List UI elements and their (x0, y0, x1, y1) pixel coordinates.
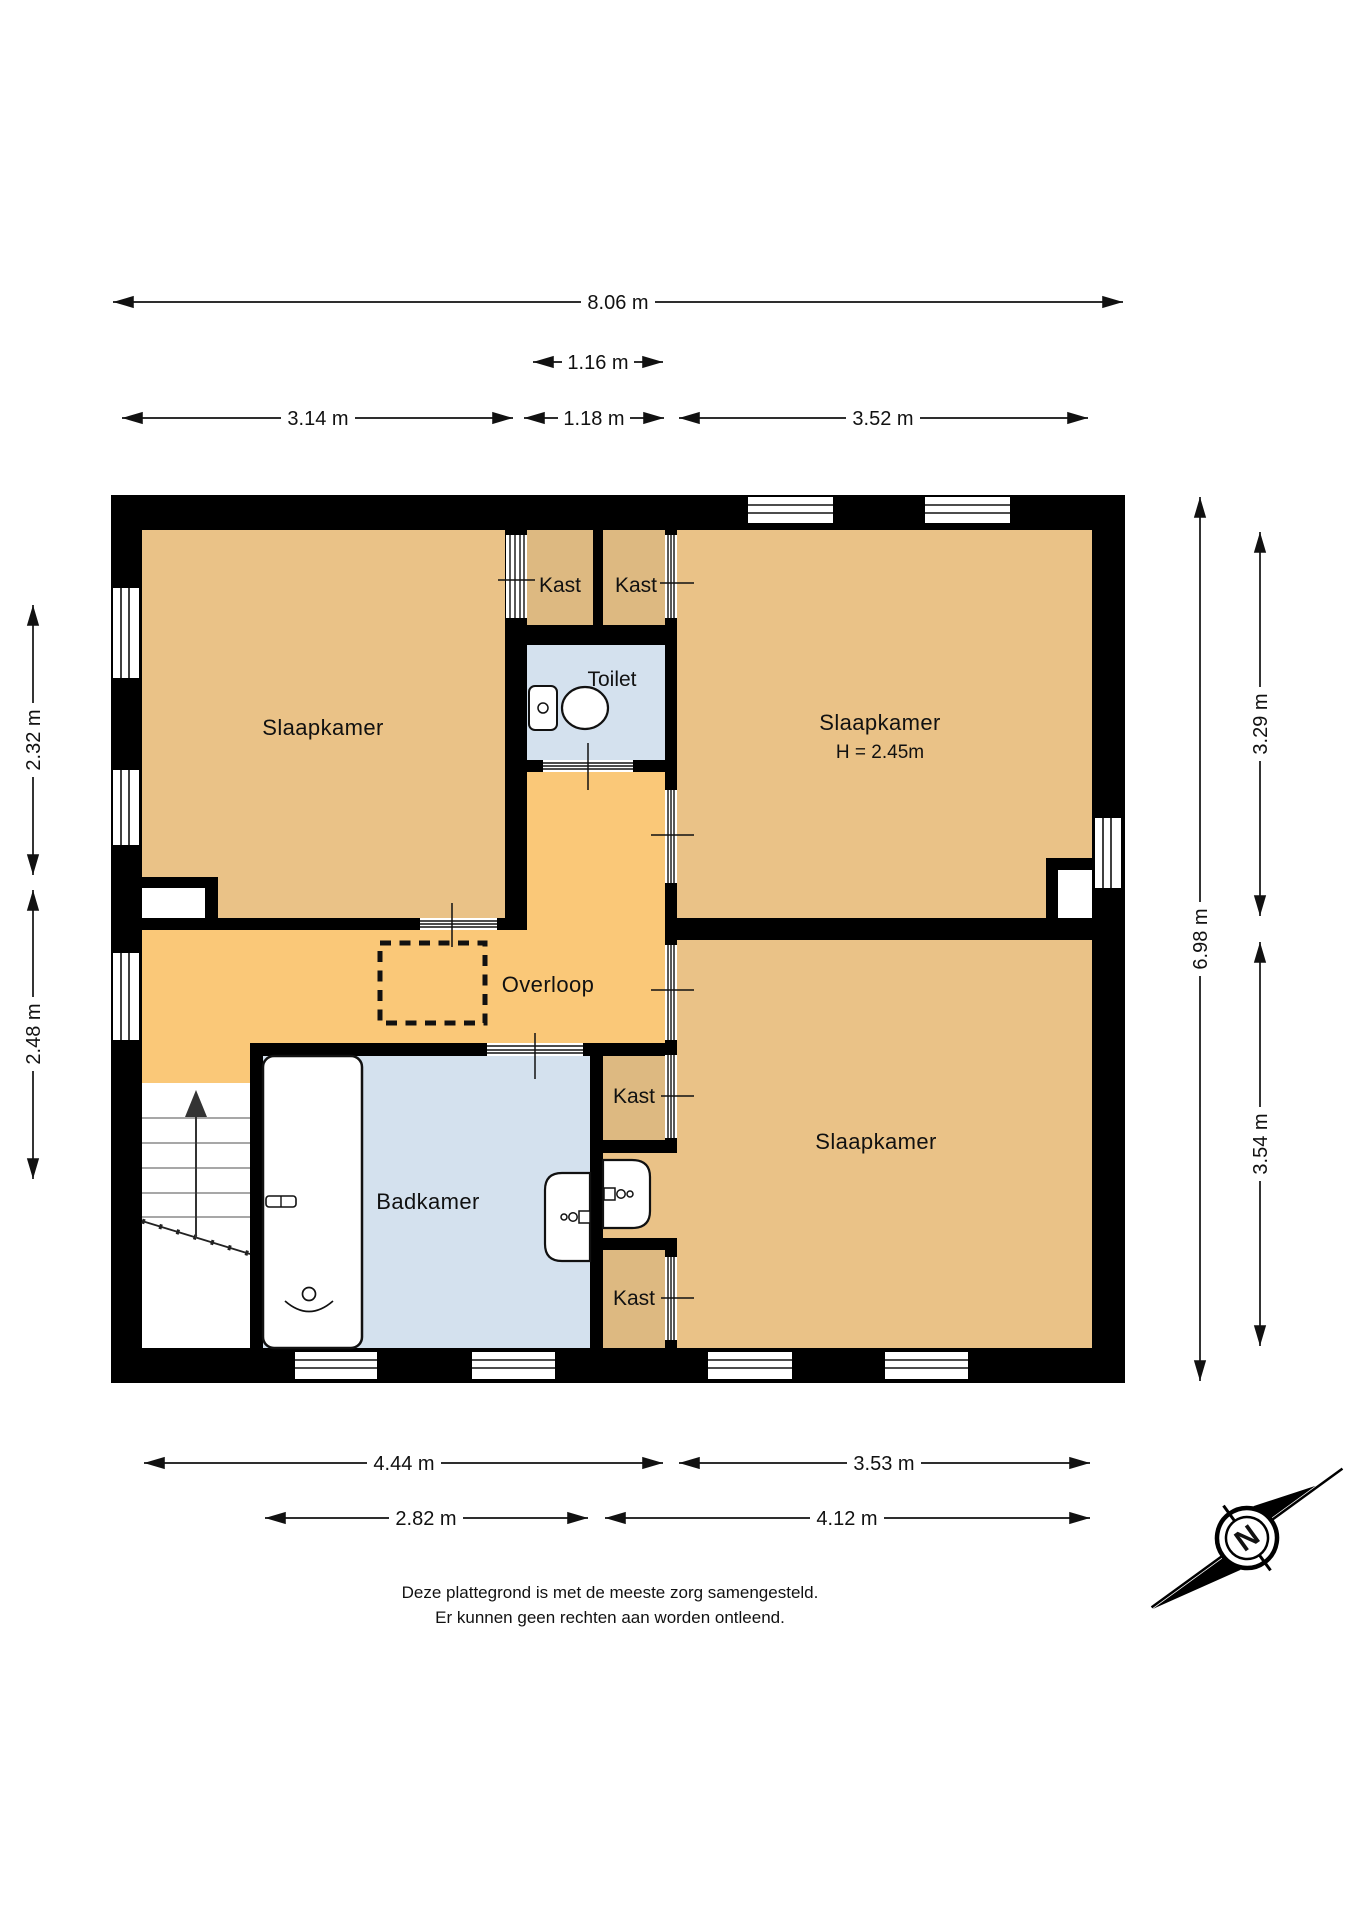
label-kast-middle: Kast (613, 1085, 655, 1108)
label-toilet: Toilet (587, 668, 636, 691)
svg-text:3.53 m: 3.53 m (853, 1453, 914, 1475)
door-kast-top-right (665, 535, 677, 618)
window-left-2 (113, 770, 139, 845)
dim-top-3-14: 3.14 m (122, 406, 513, 430)
dim-bottom-3-53: 3.53 m (679, 1451, 1090, 1475)
dim-left-2-48: 2.48 m (21, 890, 45, 1179)
dim-bottom-4-44: 4.44 m (144, 1451, 663, 1475)
dim-left-2-32: 2.32 m (21, 605, 45, 875)
dim-right-3-29: 3.29 m (1248, 532, 1272, 916)
label-height-note: H = 2.45m (836, 742, 924, 763)
label-badkamer: Badkamer (376, 1189, 479, 1214)
floor-plan: Slaapkamer Kast Kast Toilet Slaapkamer H… (111, 495, 1125, 1383)
door-kast-top-left (506, 535, 527, 618)
disclaimer: Deze plattegrond is met de meeste zorg s… (402, 1583, 819, 1627)
svg-text:1.16 m: 1.16 m (567, 352, 628, 374)
label-slaapkamer-right-bottom: Slaapkamer (815, 1129, 936, 1154)
svg-text:3.52 m: 3.52 m (852, 408, 913, 430)
alcove-sink-icon (603, 1160, 650, 1228)
door-slaapkamer-right-bottom (665, 945, 677, 1040)
badkamer-sink-icon (545, 1173, 590, 1261)
svg-text:3.29 m: 3.29 m (1250, 693, 1272, 754)
svg-text:2.48 m: 2.48 m (23, 1003, 45, 1064)
svg-text:3.54 m: 3.54 m (1250, 1113, 1272, 1174)
svg-text:4.44 m: 4.44 m (373, 1453, 434, 1475)
floorplan-canvas: Slaapkamer Kast Kast Toilet Slaapkamer H… (0, 0, 1358, 1920)
window-top-2 (925, 497, 1010, 523)
niche-left-bedroom (142, 877, 218, 918)
label-slaapkamer-left: Slaapkamer (262, 715, 383, 740)
door-slaapkamer-right-top (665, 790, 677, 883)
bathtub-icon (263, 1056, 362, 1348)
dim-top-1-16: 1.16 m (533, 350, 663, 374)
label-kast-bottom: Kast (613, 1287, 655, 1310)
room-overloop-corridor (527, 772, 665, 930)
label-overloop: Overloop (502, 972, 594, 997)
floorplan-page: Slaapkamer Kast Kast Toilet Slaapkamer H… (0, 0, 1358, 1920)
window-left-1 (113, 588, 139, 678)
svg-text:2.82 m: 2.82 m (395, 1508, 456, 1530)
label-kast-top-right: Kast (615, 574, 657, 597)
niche-right-bedroom (1046, 858, 1092, 918)
window-right-1 (1095, 818, 1121, 888)
label-slaapkamer-right-top: Slaapkamer (819, 710, 940, 735)
dim-right-6-98: 6.98 m (1188, 497, 1212, 1381)
label-kast-top-left: Kast (539, 574, 581, 597)
window-bottom-1 (295, 1352, 377, 1379)
svg-text:6.98 m: 6.98 m (1190, 908, 1212, 969)
svg-text:2.32 m: 2.32 m (23, 709, 45, 770)
door-slaapkamer-left (420, 918, 497, 930)
disclaimer-line-2: Er kunnen geen rechten aan worden ontlee… (435, 1608, 785, 1627)
compass-north-icon: N (1128, 1436, 1358, 1639)
svg-text:3.14 m: 3.14 m (287, 408, 348, 430)
window-bottom-3 (708, 1352, 792, 1379)
dim-bottom-2-82: 2.82 m (265, 1506, 588, 1530)
window-bottom-4 (885, 1352, 968, 1379)
window-bottom-2 (472, 1352, 555, 1379)
window-top-1 (748, 497, 833, 523)
svg-text:4.12 m: 4.12 m (816, 1508, 877, 1530)
svg-text:1.18 m: 1.18 m (563, 408, 624, 430)
room-overloop-stair-top (142, 1043, 250, 1083)
dim-right-3-54: 3.54 m (1248, 942, 1272, 1346)
dim-top-1-18: 1.18 m (524, 406, 664, 430)
dim-top-8-06: 8.06 m (113, 290, 1123, 314)
window-left-3 (113, 953, 139, 1040)
dim-top-3-52: 3.52 m (679, 406, 1088, 430)
dim-bottom-4-12: 4.12 m (605, 1506, 1090, 1530)
toilet-fixture-icon (529, 686, 608, 730)
svg-text:8.06 m: 8.06 m (587, 292, 648, 314)
disclaimer-line-1: Deze plattegrond is met de meeste zorg s… (402, 1583, 819, 1602)
